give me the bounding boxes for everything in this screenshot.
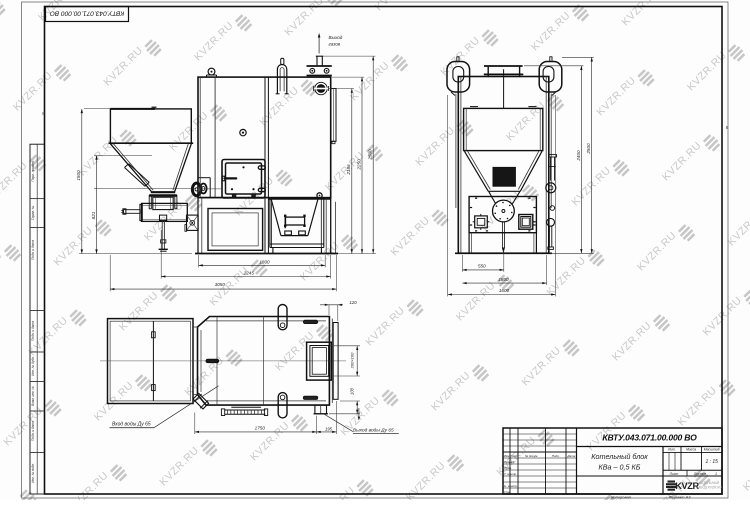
svg-text:Лист: Лист xyxy=(669,472,679,476)
svg-text:Подп. и дата: Подп. и дата xyxy=(31,321,35,341)
svg-text:Масса: Масса xyxy=(686,448,696,452)
svg-text:Разраб.: Разраб. xyxy=(504,460,515,464)
svg-text:Лист: Лист xyxy=(509,454,518,458)
svg-text:2500: 2500 xyxy=(586,143,591,155)
svg-text:Выход: Выход xyxy=(329,35,343,40)
svg-text:Масштаб: Масштаб xyxy=(704,448,720,452)
svg-text:Т. контр.: Т. контр. xyxy=(504,472,517,476)
svg-text:1750: 1750 xyxy=(255,425,266,430)
svg-text:Взам. инв. №: Взам. инв. № xyxy=(31,386,35,406)
svg-text:№ докум.: № докум. xyxy=(525,454,538,458)
svg-text:Подп.: Подп. xyxy=(552,454,560,458)
svg-text:2400: 2400 xyxy=(576,150,581,162)
svg-text:1500: 1500 xyxy=(76,170,81,181)
svg-text:газов: газов xyxy=(329,41,341,46)
svg-text:КВа – 0,5 КБ: КВа – 0,5 КБ xyxy=(599,463,641,472)
svg-text:Выход воды Ду 65: Выход воды Ду 65 xyxy=(353,428,394,434)
svg-text:Инв. № дубл.: Инв. № дубл. xyxy=(31,356,35,376)
svg-text:2186: 2186 xyxy=(346,164,351,176)
svg-text:550: 550 xyxy=(478,264,486,269)
svg-text:Котельный блок: Котельный блок xyxy=(591,452,648,461)
svg-text:Формат А3: Формат А3 xyxy=(669,494,692,499)
svg-text:Утв.: Утв. xyxy=(504,490,511,494)
svg-text:Лит.: Лит. xyxy=(667,448,676,452)
svg-text:ЗАВОД KVZR.RU: ЗАВОД KVZR.RU xyxy=(696,485,722,489)
svg-text:195: 195 xyxy=(325,426,333,431)
svg-text:Справ. №: Справ. № xyxy=(31,205,35,220)
svg-text:100: 100 xyxy=(350,387,355,395)
svg-text:120: 120 xyxy=(349,300,357,305)
svg-text:1600: 1600 xyxy=(499,288,510,293)
svg-text:КВТУ.043.071.00.000 ВО: КВТУ.043.071.00.000 ВО xyxy=(602,433,697,443)
svg-text:Дата: Дата xyxy=(566,454,575,458)
svg-text:Изм: Изм xyxy=(504,454,510,458)
svg-text:1 : 15: 1 : 15 xyxy=(705,459,718,465)
svg-text:Подп. и дата: Подп. и дата xyxy=(31,421,35,441)
svg-text:200×100: 200×100 xyxy=(350,352,355,369)
svg-text:Н. контр.: Н. контр. xyxy=(504,484,518,488)
svg-text:Вход воды Ду 65: Вход воды Ду 65 xyxy=(112,421,151,427)
svg-text:Перв. примен.: Перв. примен. xyxy=(31,160,35,181)
svg-text:2250: 2250 xyxy=(356,159,361,171)
svg-text:2500: 2500 xyxy=(368,149,373,161)
svg-text:КВТУ.043.071.00.000 ВО: КВТУ.043.071.00.000 ВО xyxy=(50,9,124,16)
svg-text:1800: 1800 xyxy=(259,259,270,264)
svg-text:Инв. № подл.: Инв. № подл. xyxy=(31,463,35,483)
svg-text:3050: 3050 xyxy=(215,282,226,287)
svg-text:2245: 2245 xyxy=(243,271,255,276)
svg-text:821: 821 xyxy=(91,211,96,219)
svg-text:КОТЕЛЬНЫЙ: КОТЕЛЬНЫЙ xyxy=(699,481,720,485)
svg-text:Листов: Листов xyxy=(693,472,707,476)
svg-text:Подп. и дата: Подп. и дата xyxy=(31,240,35,260)
svg-text:1800: 1800 xyxy=(498,277,509,282)
svg-text:1: 1 xyxy=(715,472,717,476)
svg-text:Копировал: Копировал xyxy=(611,494,632,499)
svg-text:Пров.: Пров. xyxy=(504,466,512,470)
